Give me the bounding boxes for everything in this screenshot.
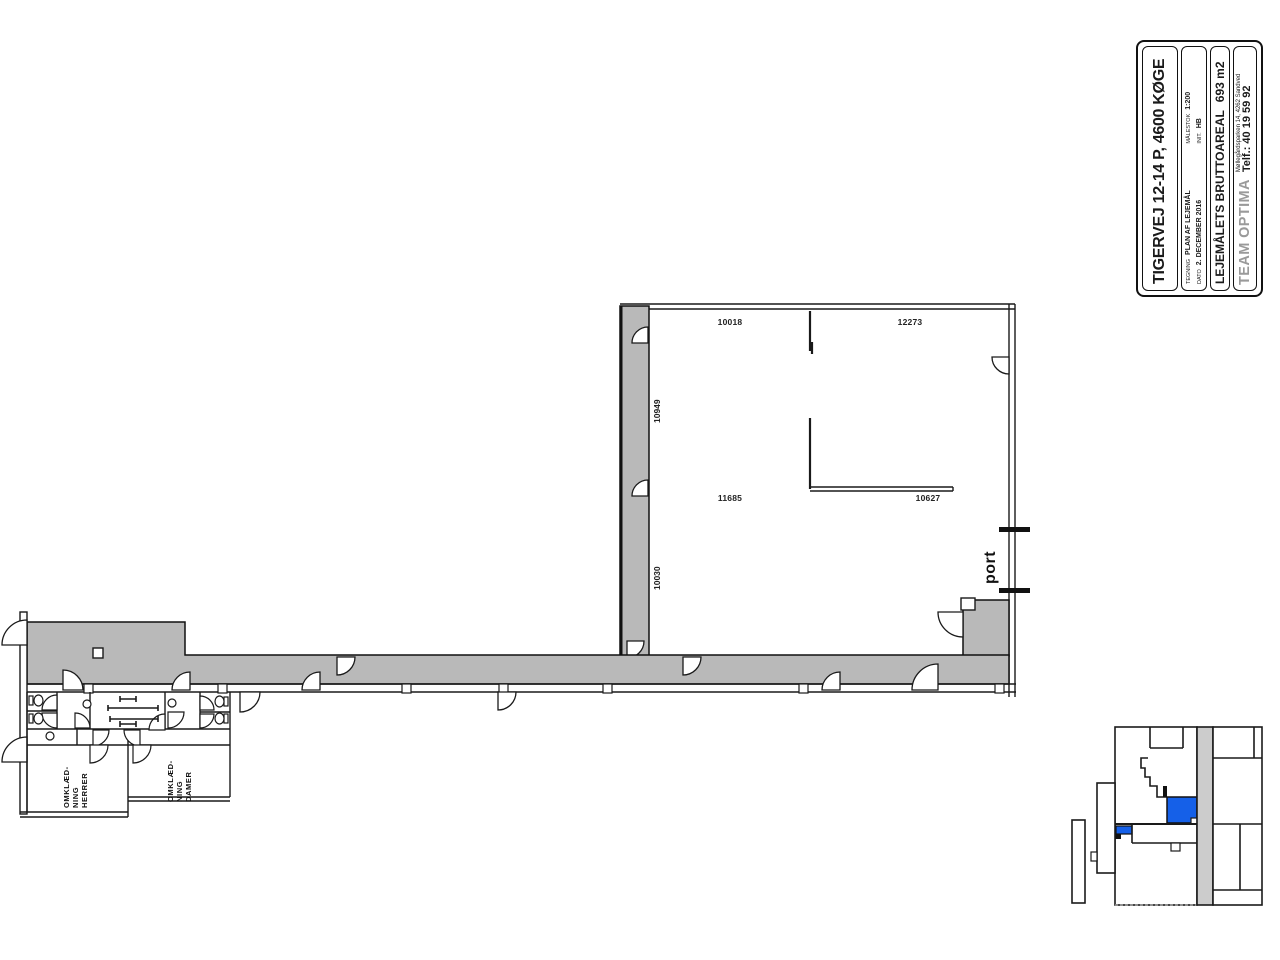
door-arc xyxy=(240,692,260,712)
plan-geometry xyxy=(110,716,158,722)
company-name: TEAM OPTIMA xyxy=(1237,179,1253,285)
dimension-left-lower: 10030 xyxy=(652,556,664,590)
west-wing xyxy=(2,612,27,814)
title-block: TIGERVEJ 12-14 P, 4600 KØGE TEGNING PLAN… xyxy=(1136,40,1263,297)
plan-geometry xyxy=(218,684,227,693)
dimension-top-right: 12273 xyxy=(880,317,940,327)
corridor xyxy=(20,622,1016,712)
plan-geometry xyxy=(603,684,612,693)
locker-women-label: OMKLÆD- NING DAMER xyxy=(166,746,194,802)
plan-geometry xyxy=(108,705,158,711)
door-arc xyxy=(133,745,151,763)
door-arc xyxy=(992,357,1009,374)
door-arc xyxy=(200,696,214,710)
big-hall xyxy=(620,304,1030,697)
gross-area: LEJEMÅLETS BRUTTOAREAL 693 m2 xyxy=(1210,46,1230,291)
company-box: TEAM OPTIMA Møllegårdsparken 14, 4262 Sa… xyxy=(1233,46,1257,291)
plan-geometry xyxy=(215,713,224,724)
plan-geometry xyxy=(34,695,43,706)
hall-east-wall xyxy=(1009,304,1015,697)
corridor-wall xyxy=(27,622,1009,684)
door-arc xyxy=(200,714,214,728)
hall-north-wall xyxy=(620,304,1015,309)
keyplan-gray-strip xyxy=(1197,727,1213,905)
toilet-icon xyxy=(215,713,228,724)
plan-geometry xyxy=(961,598,975,610)
port-label: port xyxy=(982,540,1004,584)
dato-value: 2. DECEMBER 2016 xyxy=(1196,200,1203,265)
dimension-left-upper: 10949 xyxy=(652,389,664,423)
plan-geometry xyxy=(215,696,224,707)
toilet-suite xyxy=(20,692,230,817)
toilet-icon xyxy=(215,696,228,707)
dato-label: DATO xyxy=(1197,269,1203,284)
plan-geometry xyxy=(402,684,411,693)
plan-geometry xyxy=(1115,834,1121,839)
tegning-label: TEGNING xyxy=(1186,259,1192,284)
door-arc xyxy=(42,695,57,710)
key-plan xyxy=(1072,727,1262,905)
plan-geometry xyxy=(84,684,93,693)
area-value: 693 m2 xyxy=(1213,62,1227,103)
plan-geometry xyxy=(29,696,33,705)
init-label: INIT. xyxy=(1197,132,1203,143)
plan-geometry xyxy=(29,714,33,723)
maalestok-label: MÅLESTOK xyxy=(1186,114,1192,144)
plan-geometry xyxy=(224,697,228,706)
door-arc xyxy=(90,745,108,763)
plan-geometry xyxy=(2,304,1262,905)
keyplan-highlight-strip xyxy=(1116,826,1132,834)
floor-plan-drawing xyxy=(0,0,1280,960)
door-arc xyxy=(124,730,140,746)
maalestok-value: 1:200 xyxy=(1185,92,1192,110)
port-tick-bottom xyxy=(999,588,1030,593)
port-tick-top xyxy=(999,527,1030,532)
door-arc xyxy=(42,713,57,728)
dimension-mid-left: 11685 xyxy=(700,493,760,503)
door-arc xyxy=(149,714,165,730)
plan-geometry xyxy=(1171,843,1180,851)
door-arc xyxy=(168,712,184,728)
plan-geometry xyxy=(120,721,136,727)
plan-geometry xyxy=(93,648,103,658)
toilet-icon xyxy=(29,713,43,724)
keyplan-far-left-block xyxy=(1072,820,1085,903)
sink-icon xyxy=(168,699,176,707)
dimension-top-left: 10018 xyxy=(700,317,760,327)
hall-partition-upper xyxy=(810,311,812,354)
drawing-title: TIGERVEJ 12-14 P, 4600 KØGE xyxy=(1142,46,1178,291)
corridor-south-wall xyxy=(20,684,1016,692)
plan-geometry xyxy=(995,684,1004,693)
toilet-icon xyxy=(29,695,43,706)
plan-geometry xyxy=(224,714,228,723)
keyplan-left-block xyxy=(1097,783,1115,873)
floor-plan-page: 10018 12273 11685 10627 10949 10030 port… xyxy=(0,0,1280,960)
drawing-meta: TEGNING PLAN AF LEJEMÅL MÅLESTOK 1:200 D… xyxy=(1181,46,1208,291)
plan-geometry xyxy=(1091,852,1097,861)
locker-men-label: OMKLÆD- NING HERRER xyxy=(62,752,90,808)
door-arc xyxy=(93,730,109,746)
plan-geometry xyxy=(34,713,43,724)
area-label: LEJEMÅLETS BRUTTOAREAL xyxy=(1213,110,1227,284)
plan-geometry xyxy=(1163,786,1167,797)
company-phone: Telf.: 40 19 59 92 xyxy=(1242,74,1254,172)
door-arc xyxy=(75,713,90,728)
hall-partition-horizontal xyxy=(810,487,953,491)
sink-icon xyxy=(46,732,54,740)
sink-icon xyxy=(83,700,91,708)
init-value: HB xyxy=(1196,118,1203,128)
tegning-value: PLAN AF LEJEMÅL xyxy=(1185,190,1192,255)
door-arc xyxy=(938,612,963,637)
dimension-mid-right: 10627 xyxy=(898,493,958,503)
door-arc xyxy=(2,620,27,645)
plan-geometry xyxy=(120,696,136,702)
plan-geometry xyxy=(799,684,808,693)
door-arc xyxy=(2,737,27,762)
door-arc xyxy=(498,692,516,710)
